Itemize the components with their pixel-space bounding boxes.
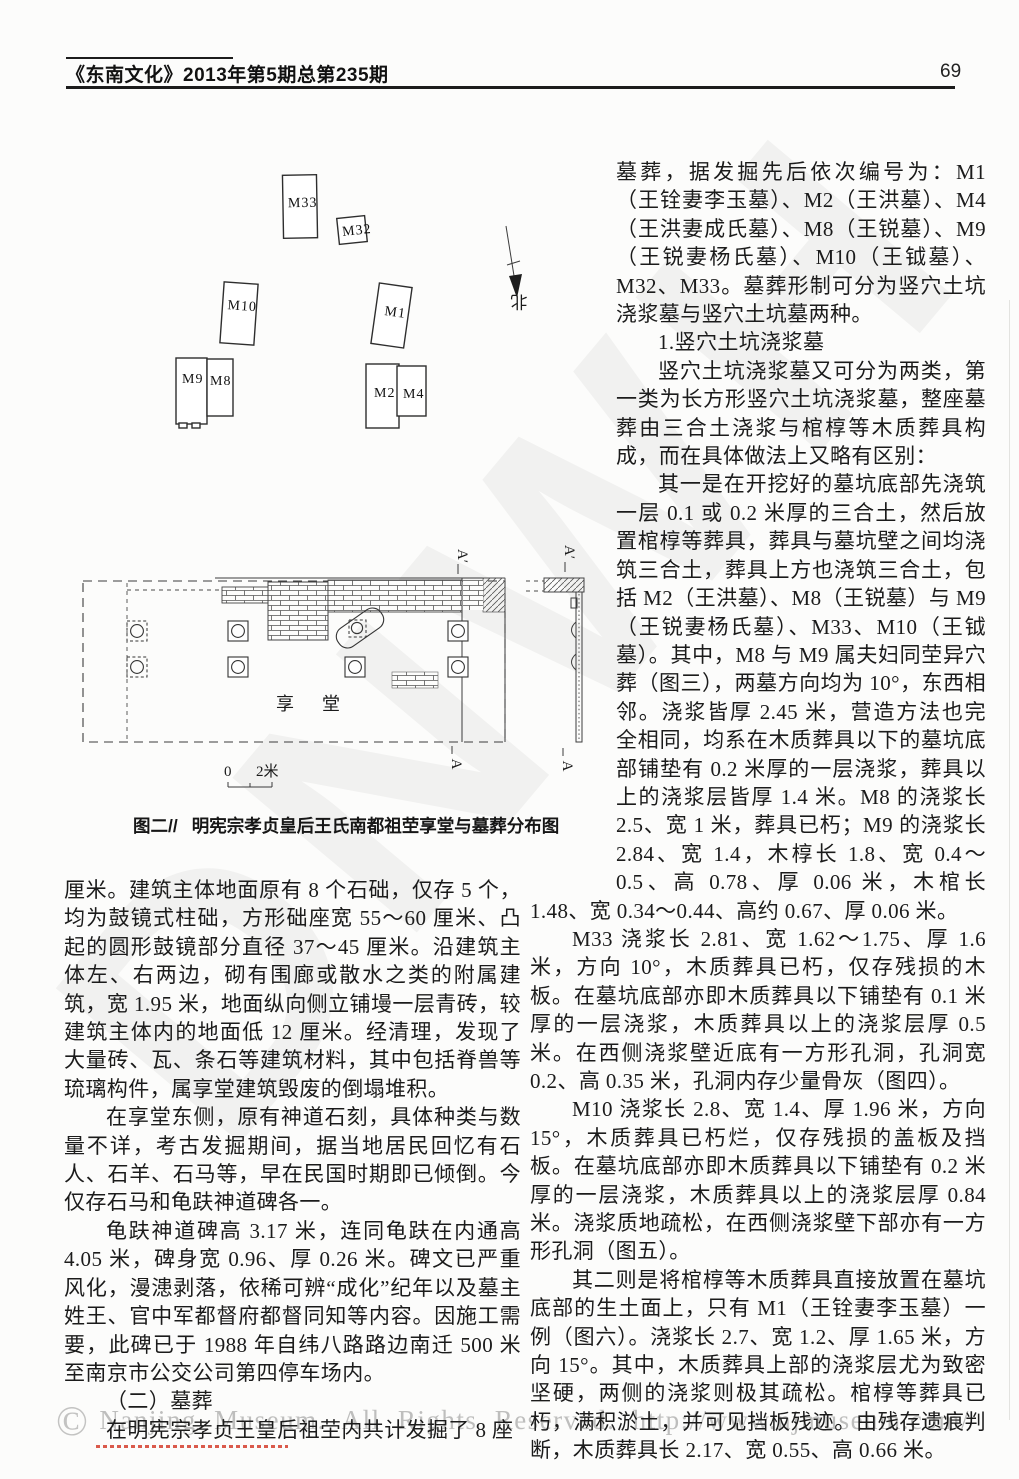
- paragraph: （二）墓葬: [64, 1387, 521, 1415]
- tomb-M4: M4: [397, 366, 426, 416]
- paragraph: M10 浇浆长 2.8、宽 1.4、厚 1.96 米，方向 15°，木质葬具已朽…: [530, 1095, 986, 1265]
- paragraph: 其二则是将棺椁等木质葬具直接放置在墓坑底部的生土面上，只有 M1（王铨妻李玉墓）…: [530, 1266, 986, 1465]
- tomb-M33: M33: [282, 175, 318, 239]
- scale-zero: 0: [224, 764, 232, 780]
- scan-edge-artifact: [1009, 300, 1010, 1420]
- tomb-label-M4: M4: [403, 387, 424, 402]
- tomb-group: M33M32M10M1M9M8M2M4: [176, 175, 426, 428]
- header-rule-bottom: [66, 86, 955, 89]
- tomb-label-M1: M1: [383, 304, 406, 322]
- scale-two-m: 2米: [256, 763, 279, 780]
- figure-caption: 图二//明宪宗孝贞皇后王氏南都祖茔享堂与墓葬分布图: [133, 813, 559, 838]
- tomb-label-M2: M2: [374, 386, 395, 401]
- north-label: 北: [511, 292, 528, 311]
- tomb-M1: M1: [371, 283, 412, 348]
- header-rule-top: [66, 57, 233, 59]
- tomb-M2: M2: [366, 364, 399, 428]
- hall-label: 享堂: [276, 694, 368, 714]
- right-column: 墓葬，据发掘先后依次编号为：M1（王铨妻李玉墓）、M2（王洪墓）、M4（王洪妻成…: [530, 158, 986, 1465]
- figure-wrap-spacer: [530, 158, 616, 894]
- plan-label-a-prime: A′: [454, 549, 470, 563]
- page-number: 69: [940, 61, 961, 83]
- tomb-label-M9: M9: [182, 372, 203, 387]
- tomb-M32: M32: [337, 215, 373, 244]
- tomb-M8: M8: [207, 359, 233, 416]
- tomb-label-M32: M32: [341, 222, 372, 240]
- hall-plan: 享堂 0 2米 A′ A: [83, 549, 505, 787]
- site-plan-figure: M33M32M10M1M9M8M2M4 北: [60, 150, 590, 810]
- scale-bar: 0 2米: [224, 763, 279, 787]
- column-base-stone: [228, 621, 468, 677]
- left-column: 厘米。建筑主体地面原有 8 个石础，仅存 5 个，均为鼓镜式柱础，方形础座宽 5…: [64, 876, 521, 1444]
- figure-caption-title: 明宪宗孝贞皇后王氏南都祖茔享堂与墓葬分布图: [192, 816, 560, 836]
- journal-issue-title: 《东南文化》2013年第5期总第235期: [66, 60, 389, 87]
- paragraph: 在明宪宗孝贞王皇后祖茔内共计发掘了 8 座: [64, 1416, 521, 1444]
- plan-label-a: A: [448, 759, 464, 770]
- north-arrow-icon: 北: [506, 226, 528, 311]
- figure-caption-prefix: 图二//: [133, 816, 178, 836]
- journal-page: DNWH 《东南文化》2013年第5期总第235期 69 M33M32M10M1…: [0, 0, 1019, 1479]
- tomb-M10: M10: [220, 282, 259, 345]
- red-wavy-underline: [96, 1445, 288, 1448]
- tomb-label-M10: M10: [227, 298, 257, 315]
- paragraph: 龟趺神道碑高 3.17 米，连同龟趺在内通高 4.05 米，碑身宽 0.96、厚…: [64, 1217, 521, 1387]
- tomb-label-M8: M8: [210, 374, 231, 389]
- tomb-M9: M9: [176, 358, 207, 428]
- paragraph: 在享堂东侧，原有神道石刻，具体种类与数量不详，考古发掘期间，据当地居民回忆有石人…: [64, 1103, 521, 1217]
- tomb-label-M33: M33: [288, 196, 318, 212]
- column-base-dashed: [127, 621, 147, 677]
- paragraph: 厘米。建筑主体地面原有 8 个石础，仅存 5 个，均为鼓镜式柱础，方形础座宽 5…: [64, 876, 521, 1103]
- paragraph: M33 浇浆长 2.81、宽 1.62～1.75、厚 1.6 米，方向 10°，…: [530, 925, 986, 1095]
